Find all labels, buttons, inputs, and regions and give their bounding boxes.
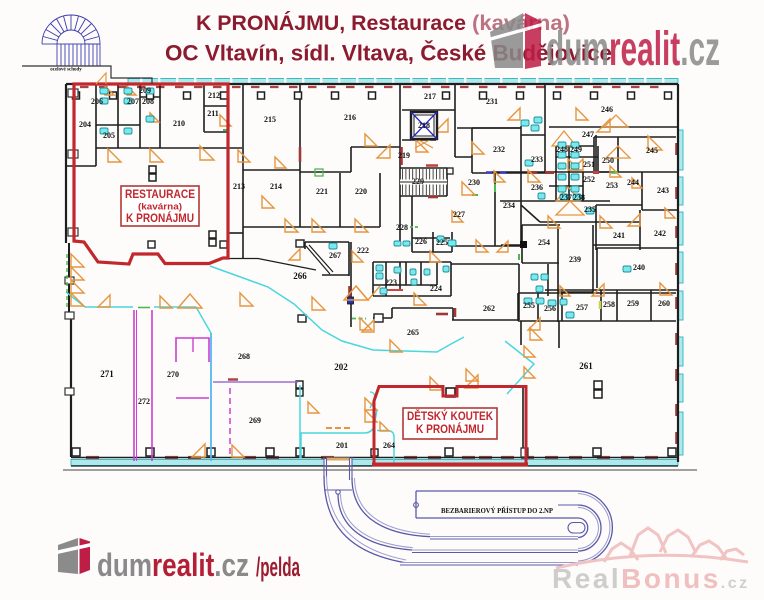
svg-text:221: 221 <box>316 187 328 196</box>
svg-text:239: 239 <box>569 255 581 264</box>
svg-text:247: 247 <box>582 130 594 139</box>
svg-text:250: 250 <box>602 156 614 165</box>
svg-text:224: 224 <box>430 284 442 293</box>
svg-text:264: 264 <box>383 441 395 450</box>
svg-text:254: 254 <box>538 238 550 247</box>
svg-text:/pelda: /pelda <box>256 552 301 582</box>
svg-text:220: 220 <box>355 187 367 196</box>
svg-text:248: 248 <box>556 145 568 154</box>
svg-text:216: 216 <box>344 113 356 122</box>
svg-text:213: 213 <box>233 182 245 191</box>
svg-text:229: 229 <box>412 177 424 186</box>
svg-text:259: 259 <box>627 299 639 308</box>
svg-text:260: 260 <box>658 299 670 308</box>
svg-text:238: 238 <box>573 193 585 202</box>
svg-text:232: 232 <box>493 145 505 154</box>
svg-text:ocelové schody: ocelové schody <box>50 68 82 73</box>
svg-text:218: 218 <box>418 121 430 130</box>
svg-text:dumrealit.cz: dumrealit.cz <box>97 547 249 583</box>
svg-text:210: 210 <box>173 119 185 128</box>
svg-text:214: 214 <box>270 182 282 191</box>
svg-text:228: 228 <box>396 223 408 232</box>
svg-text:207: 207 <box>127 97 139 106</box>
svg-text:266: 266 <box>293 271 307 281</box>
svg-text:219: 219 <box>398 151 410 160</box>
svg-text:270: 270 <box>167 370 179 379</box>
svg-text:252: 252 <box>583 175 595 184</box>
svg-text:209: 209 <box>139 86 151 95</box>
svg-text:223: 223 <box>385 278 397 287</box>
svg-text:244: 244 <box>627 178 639 187</box>
svg-text:227: 227 <box>453 210 465 219</box>
svg-text:255: 255 <box>523 301 535 310</box>
svg-text:208: 208 <box>142 97 154 106</box>
svg-text:K PRONÁJMU: K PRONÁJMU <box>416 421 484 436</box>
svg-text:236: 236 <box>531 183 543 192</box>
svg-text:234: 234 <box>503 201 515 210</box>
svg-text:RealBonus.cz: RealBonus.cz <box>552 563 750 594</box>
svg-text:246: 246 <box>601 105 613 114</box>
svg-text:K PRONÁJMU, Restaurace: K PRONÁJMU, Restaurace <box>196 12 466 35</box>
svg-text:240: 240 <box>633 263 645 272</box>
svg-text:272: 272 <box>138 397 150 406</box>
svg-text:K PRONÁJMU: K PRONÁJMU <box>126 210 194 225</box>
svg-text:269: 269 <box>249 416 261 425</box>
svg-text:dumrealit.cz: dumrealit.cz <box>546 23 720 76</box>
svg-text:256: 256 <box>544 304 556 313</box>
svg-text:BEZBARIEROVÝ PŘÍSTUP DO 2.NP: BEZBARIEROVÝ PŘÍSTUP DO 2.NP <box>441 505 553 515</box>
svg-text:231: 231 <box>486 97 498 106</box>
svg-text:271: 271 <box>100 369 114 379</box>
svg-text:262: 262 <box>483 304 495 313</box>
svg-text:237: 237 <box>560 193 572 202</box>
svg-text:261: 261 <box>579 361 593 371</box>
svg-text:222: 222 <box>357 246 369 255</box>
svg-text:202: 202 <box>334 362 348 372</box>
svg-text:215: 215 <box>264 115 276 124</box>
svg-text:233: 233 <box>531 155 543 164</box>
svg-text:257: 257 <box>576 303 588 312</box>
svg-text:265: 265 <box>407 328 419 337</box>
svg-text:245: 245 <box>646 146 658 155</box>
svg-text:242: 242 <box>654 229 666 238</box>
svg-text:249: 249 <box>570 145 582 154</box>
svg-text:267: 267 <box>329 251 341 260</box>
svg-text:241: 241 <box>613 231 625 240</box>
svg-text:226: 226 <box>415 237 427 246</box>
svg-text:230: 230 <box>468 178 480 187</box>
svg-text:251: 251 <box>583 160 595 169</box>
svg-text:243: 243 <box>657 186 669 195</box>
svg-text:211: 211 <box>207 109 219 118</box>
svg-text:204: 204 <box>79 120 91 129</box>
svg-text:OC Vltavín, sídl. Vltava, Česk: OC Vltavín, sídl. Vltava, České Budějovi… <box>165 41 612 66</box>
svg-text:268: 268 <box>238 352 250 361</box>
svg-text:205: 205 <box>103 131 115 140</box>
svg-text:206: 206 <box>91 97 103 106</box>
svg-text:201: 201 <box>336 441 348 450</box>
svg-text:258: 258 <box>603 300 615 309</box>
svg-text:212: 212 <box>208 91 220 100</box>
svg-text:235: 235 <box>584 205 596 214</box>
svg-text:253: 253 <box>606 181 618 190</box>
svg-text:217: 217 <box>424 92 436 101</box>
svg-text:225: 225 <box>436 238 448 247</box>
svg-text:DĚTSKÝ KOUTEK: DĚTSKÝ KOUTEK <box>407 408 493 423</box>
svg-text:RESTAURACE: RESTAURACE <box>125 187 195 201</box>
